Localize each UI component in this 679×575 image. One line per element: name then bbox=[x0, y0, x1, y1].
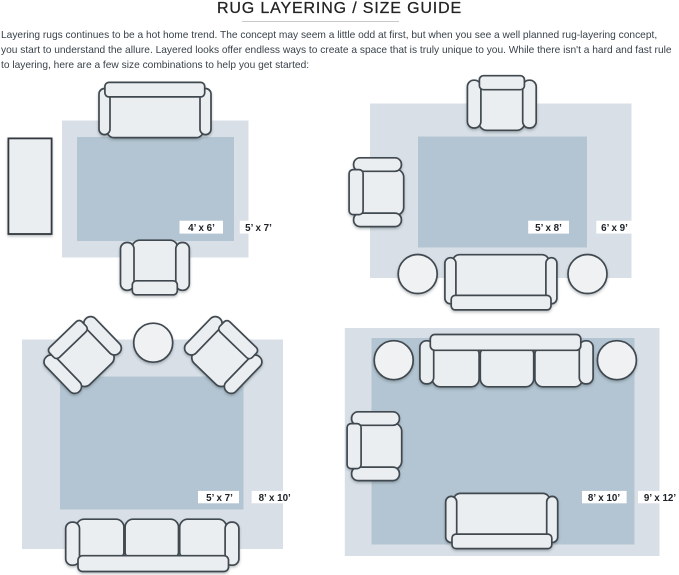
svg-text:8’ x 10’: 8’ x 10’ bbox=[259, 493, 291, 504]
svg-text:8’ x 10’: 8’ x 10’ bbox=[588, 493, 620, 504]
svg-text:6’ x 9’: 6’ x 9’ bbox=[601, 223, 628, 234]
svg-text:5’ x 8’: 5’ x 8’ bbox=[535, 223, 562, 234]
svg-text:5’ x 7’: 5’ x 7’ bbox=[245, 223, 272, 234]
svg-text:4’ x 6’: 4’ x 6’ bbox=[188, 223, 215, 234]
svg-text:5’ x 7’: 5’ x 7’ bbox=[206, 493, 233, 504]
svg-text:9’ x 12’: 9’ x 12’ bbox=[644, 493, 676, 504]
